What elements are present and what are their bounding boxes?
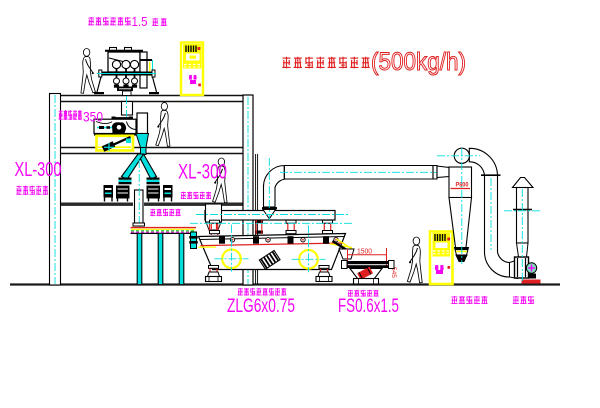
svg-text:FS0.6x1.5: FS0.6x1.5 [338, 296, 399, 317]
svg-text:(500kg/h): (500kg/h) [371, 48, 466, 76]
svg-text:ZLG6x0.75: ZLG6x0.75 [227, 296, 295, 317]
svg-text:350: 350 [83, 109, 103, 125]
svg-text:1500: 1500 [357, 246, 372, 255]
svg-text:XL-300: XL-300 [15, 158, 62, 181]
svg-text:XL-300: XL-300 [178, 161, 227, 184]
svg-text:1.5: 1.5 [132, 14, 148, 29]
